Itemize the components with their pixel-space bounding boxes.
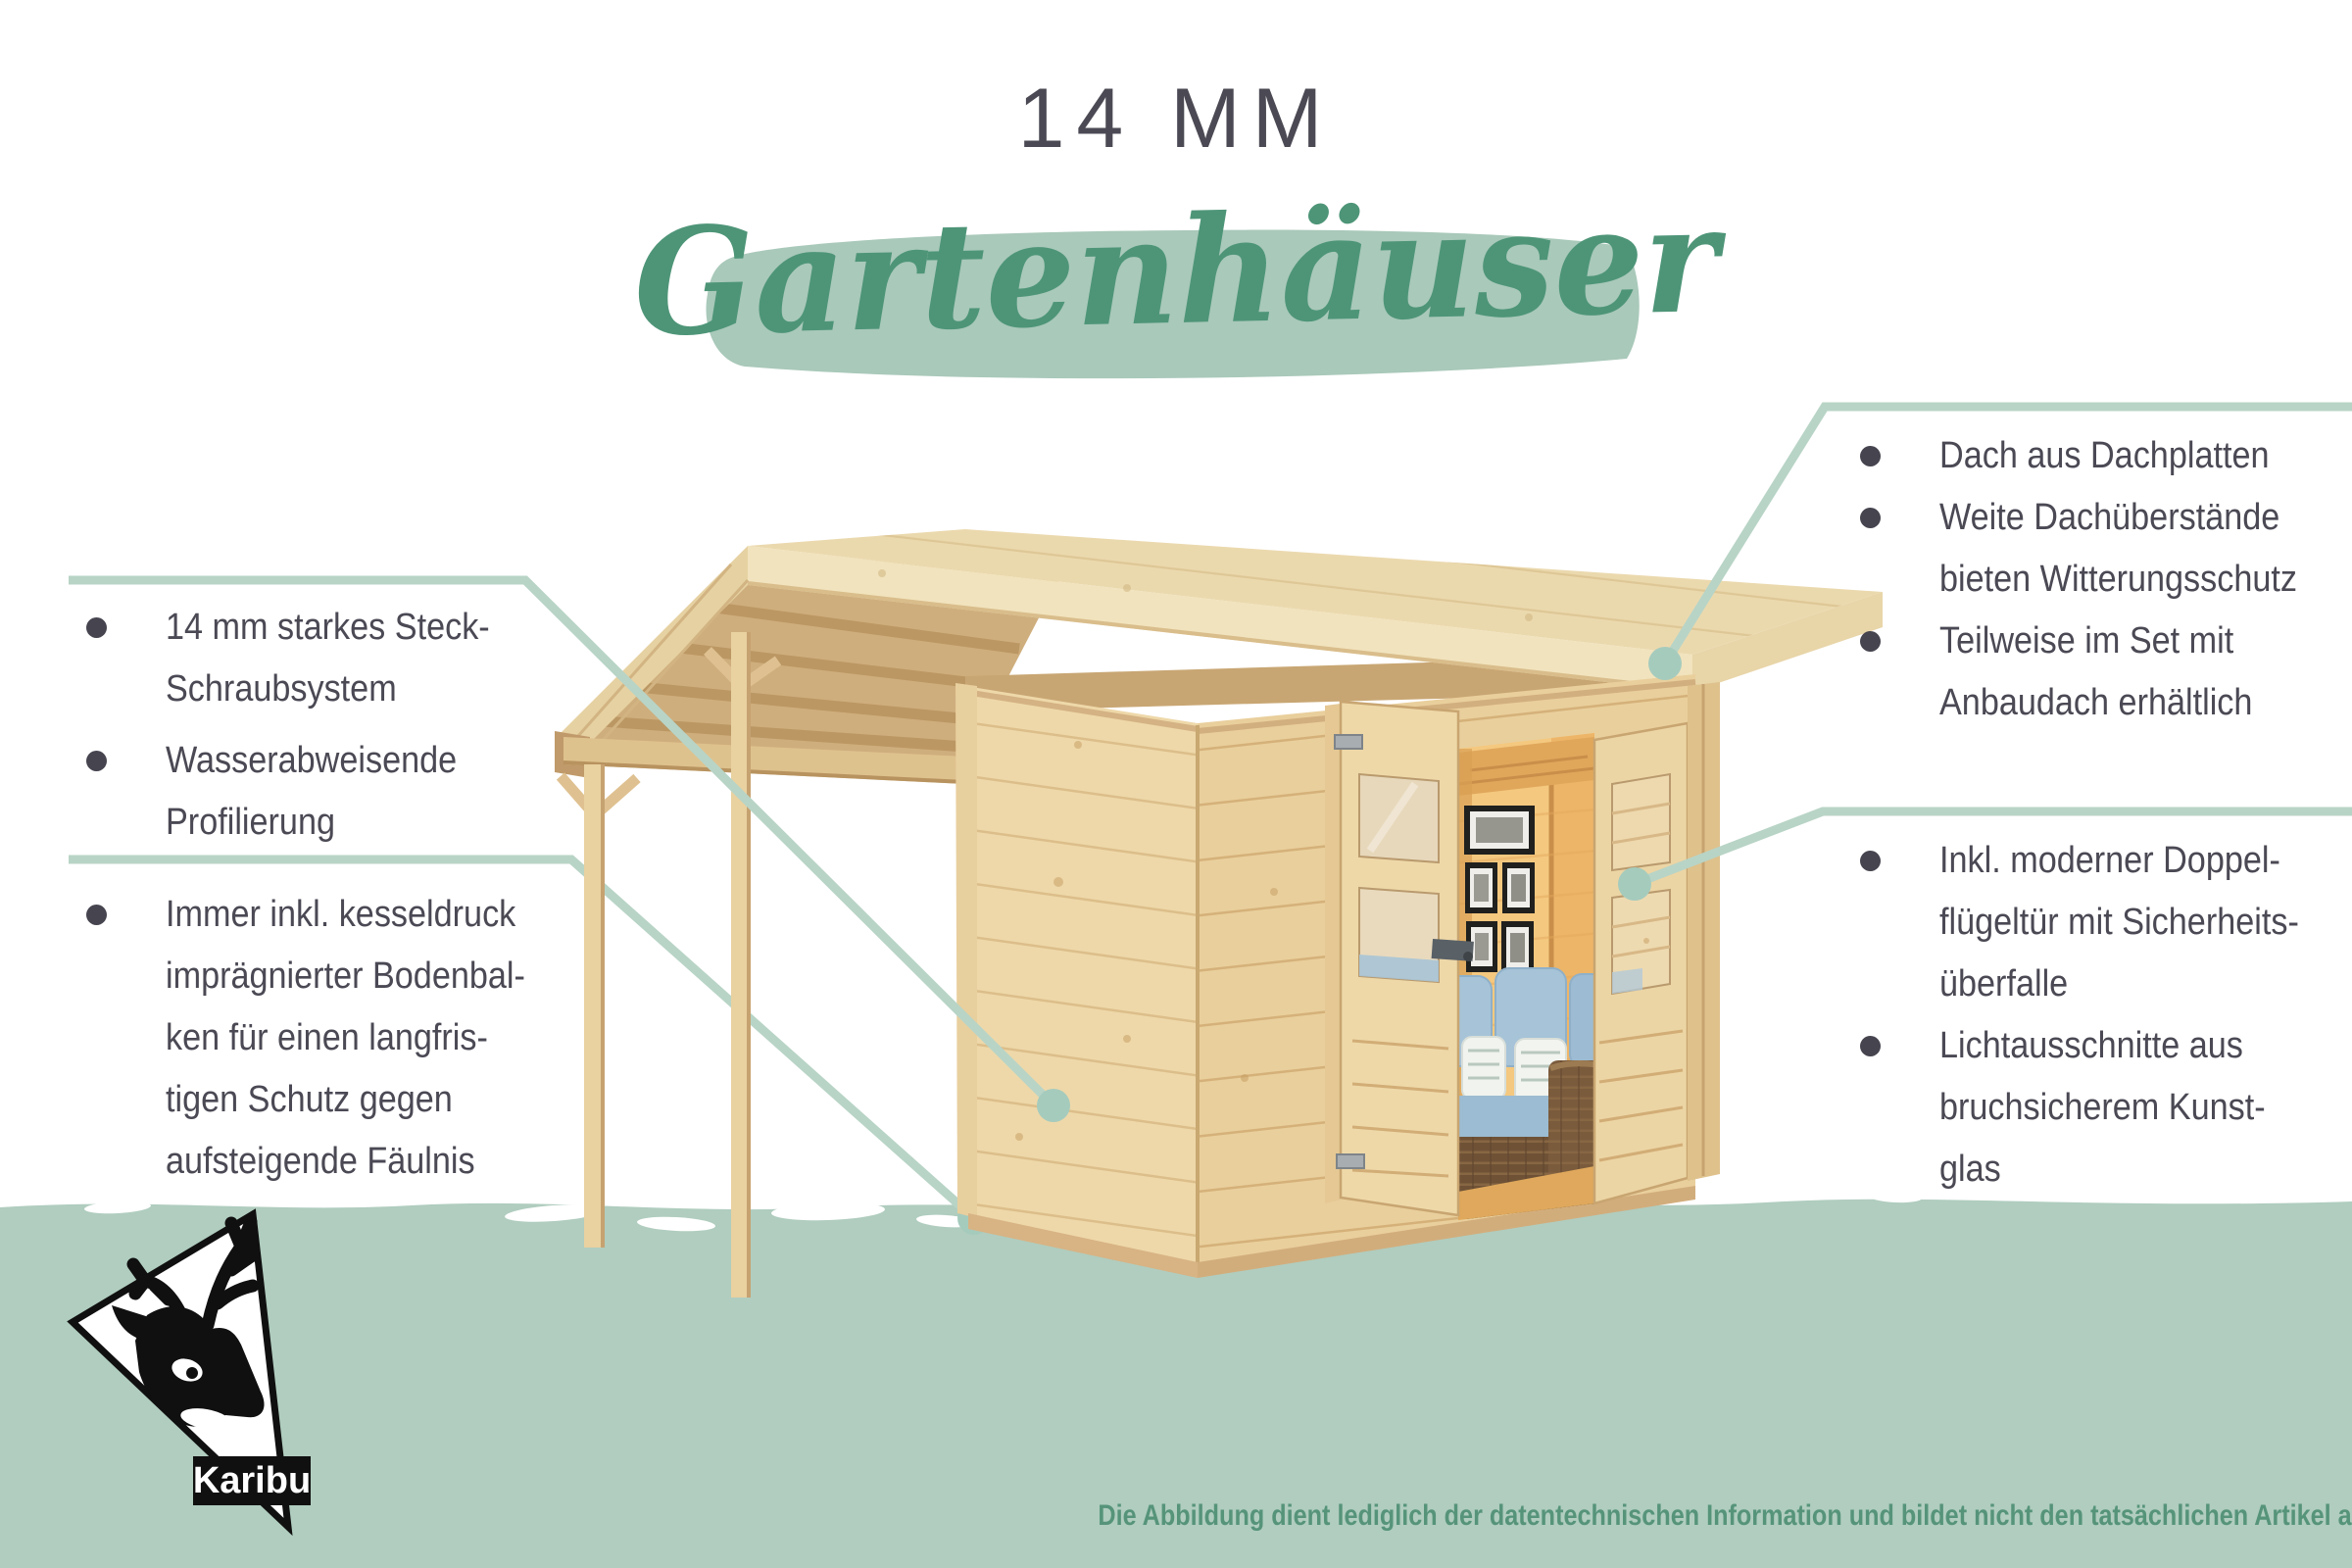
right-door xyxy=(1594,723,1688,1203)
bullet-dot xyxy=(86,905,107,925)
left-door xyxy=(1335,702,1474,1215)
feature-item: Dach aus Dachplatten xyxy=(1842,425,2352,487)
disclaimer-text: Die Abbildung dient lediglich der datent… xyxy=(1098,1497,2233,1535)
bullet-dot xyxy=(1860,1036,1881,1056)
feature-line: Weite Dachüberstände xyxy=(1939,487,2297,549)
infographic-page: { "title": "14 MM", "subtitle": "Gartenh… xyxy=(0,0,2352,1568)
callout-dot-wall xyxy=(1037,1089,1070,1122)
feature-line: Dach aus Dachplatten xyxy=(1939,425,2270,487)
feature-line: Wasserabweisende xyxy=(166,730,457,792)
feature-line: aufsteigende Fäulnis xyxy=(166,1131,525,1193)
feature-line: 14 mm starkes Steck- xyxy=(166,597,490,659)
feature-item: Wasserabweisende Profilierung xyxy=(69,730,755,854)
feature-line: Inkl. moderner Doppel- xyxy=(1939,830,2299,892)
feature-item: Inkl. moderner Doppel- flügeltür mit Sic… xyxy=(1842,830,2352,1015)
feature-block-left-top: 14 mm starkes Steck- Schraubsystem Wasse… xyxy=(69,597,755,854)
feature-line: tigen Schutz gegen xyxy=(166,1069,525,1131)
feature-block-left-bottom: Immer inkl. kesseldruck imprägnierter Bo… xyxy=(69,884,755,1193)
feature-line: bruchsicherem Kunst- xyxy=(1939,1077,2266,1139)
callout-dot-roof xyxy=(1648,647,1682,680)
feature-line: flügeltür mit Sicherheits- xyxy=(1939,892,2299,954)
door-jamb xyxy=(1325,704,1341,1203)
feature-item: 14 mm starkes Steck- Schraubsystem xyxy=(69,597,755,720)
feature-block-right-top: Dach aus Dachplatten Weite Dachüberständ… xyxy=(1842,425,2352,734)
page-title: 14 MM xyxy=(0,74,2352,163)
feature-line: Profilierung xyxy=(166,792,457,854)
logo-text: Karibu xyxy=(193,1460,311,1501)
feature-line: Immer inkl. kesseldruck xyxy=(166,884,525,946)
feature-block-right-bottom: Inkl. moderner Doppel- flügeltür mit Sic… xyxy=(1842,830,2352,1200)
callout-dot-door xyxy=(1618,867,1651,901)
bullet-dot xyxy=(86,617,107,638)
feature-item: Immer inkl. kesseldruck imprägnierter Bo… xyxy=(69,884,755,1193)
feature-line: Lichtausschnitte aus xyxy=(1939,1015,2266,1077)
bullet-dot xyxy=(86,751,107,771)
feature-line: ken für einen langfris- xyxy=(166,1007,525,1069)
feature-line: glas xyxy=(1939,1139,2266,1200)
corner-batten xyxy=(955,683,977,1218)
bullet-dot xyxy=(1860,446,1881,466)
bullet-dot xyxy=(1860,851,1881,871)
feature-line: Anbaudach erhältlich xyxy=(1939,672,2252,734)
bullet-dot xyxy=(1860,631,1881,652)
feature-line: bieten Witterungsschutz xyxy=(1939,549,2297,611)
feature-item: Lichtausschnitte aus bruchsicherem Kunst… xyxy=(1842,1015,2352,1200)
door-hinge-bottom xyxy=(1337,1154,1364,1168)
feature-line: überfalle xyxy=(1939,954,2299,1015)
door-hinge-top xyxy=(1335,735,1362,749)
feature-line: imprägnierter Bodenbal- xyxy=(166,946,525,1007)
feature-line: Schraubsystem xyxy=(166,659,490,720)
feature-item: Teilweise im Set mit Anbaudach erhältlic… xyxy=(1842,611,2352,734)
feature-line: Teilweise im Set mit xyxy=(1939,611,2252,672)
bullet-dot xyxy=(1860,508,1881,528)
feature-item: Weite Dachüberstände bieten Witterungssc… xyxy=(1842,487,2352,611)
